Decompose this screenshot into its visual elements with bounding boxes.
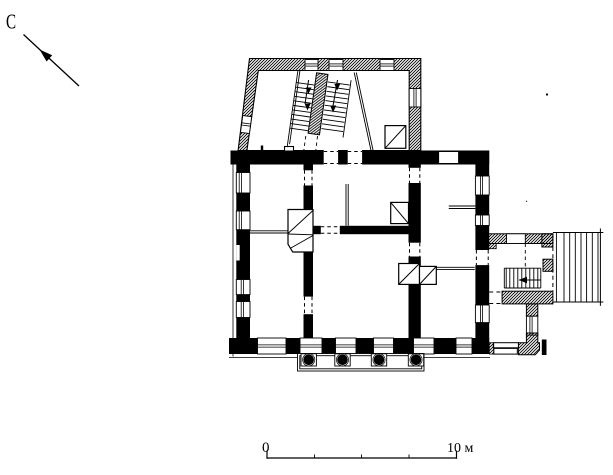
svg-text:С: С (6, 10, 16, 33)
svg-text:0: 0 (262, 440, 270, 456)
svg-text:10 м: 10 м (447, 441, 474, 456)
